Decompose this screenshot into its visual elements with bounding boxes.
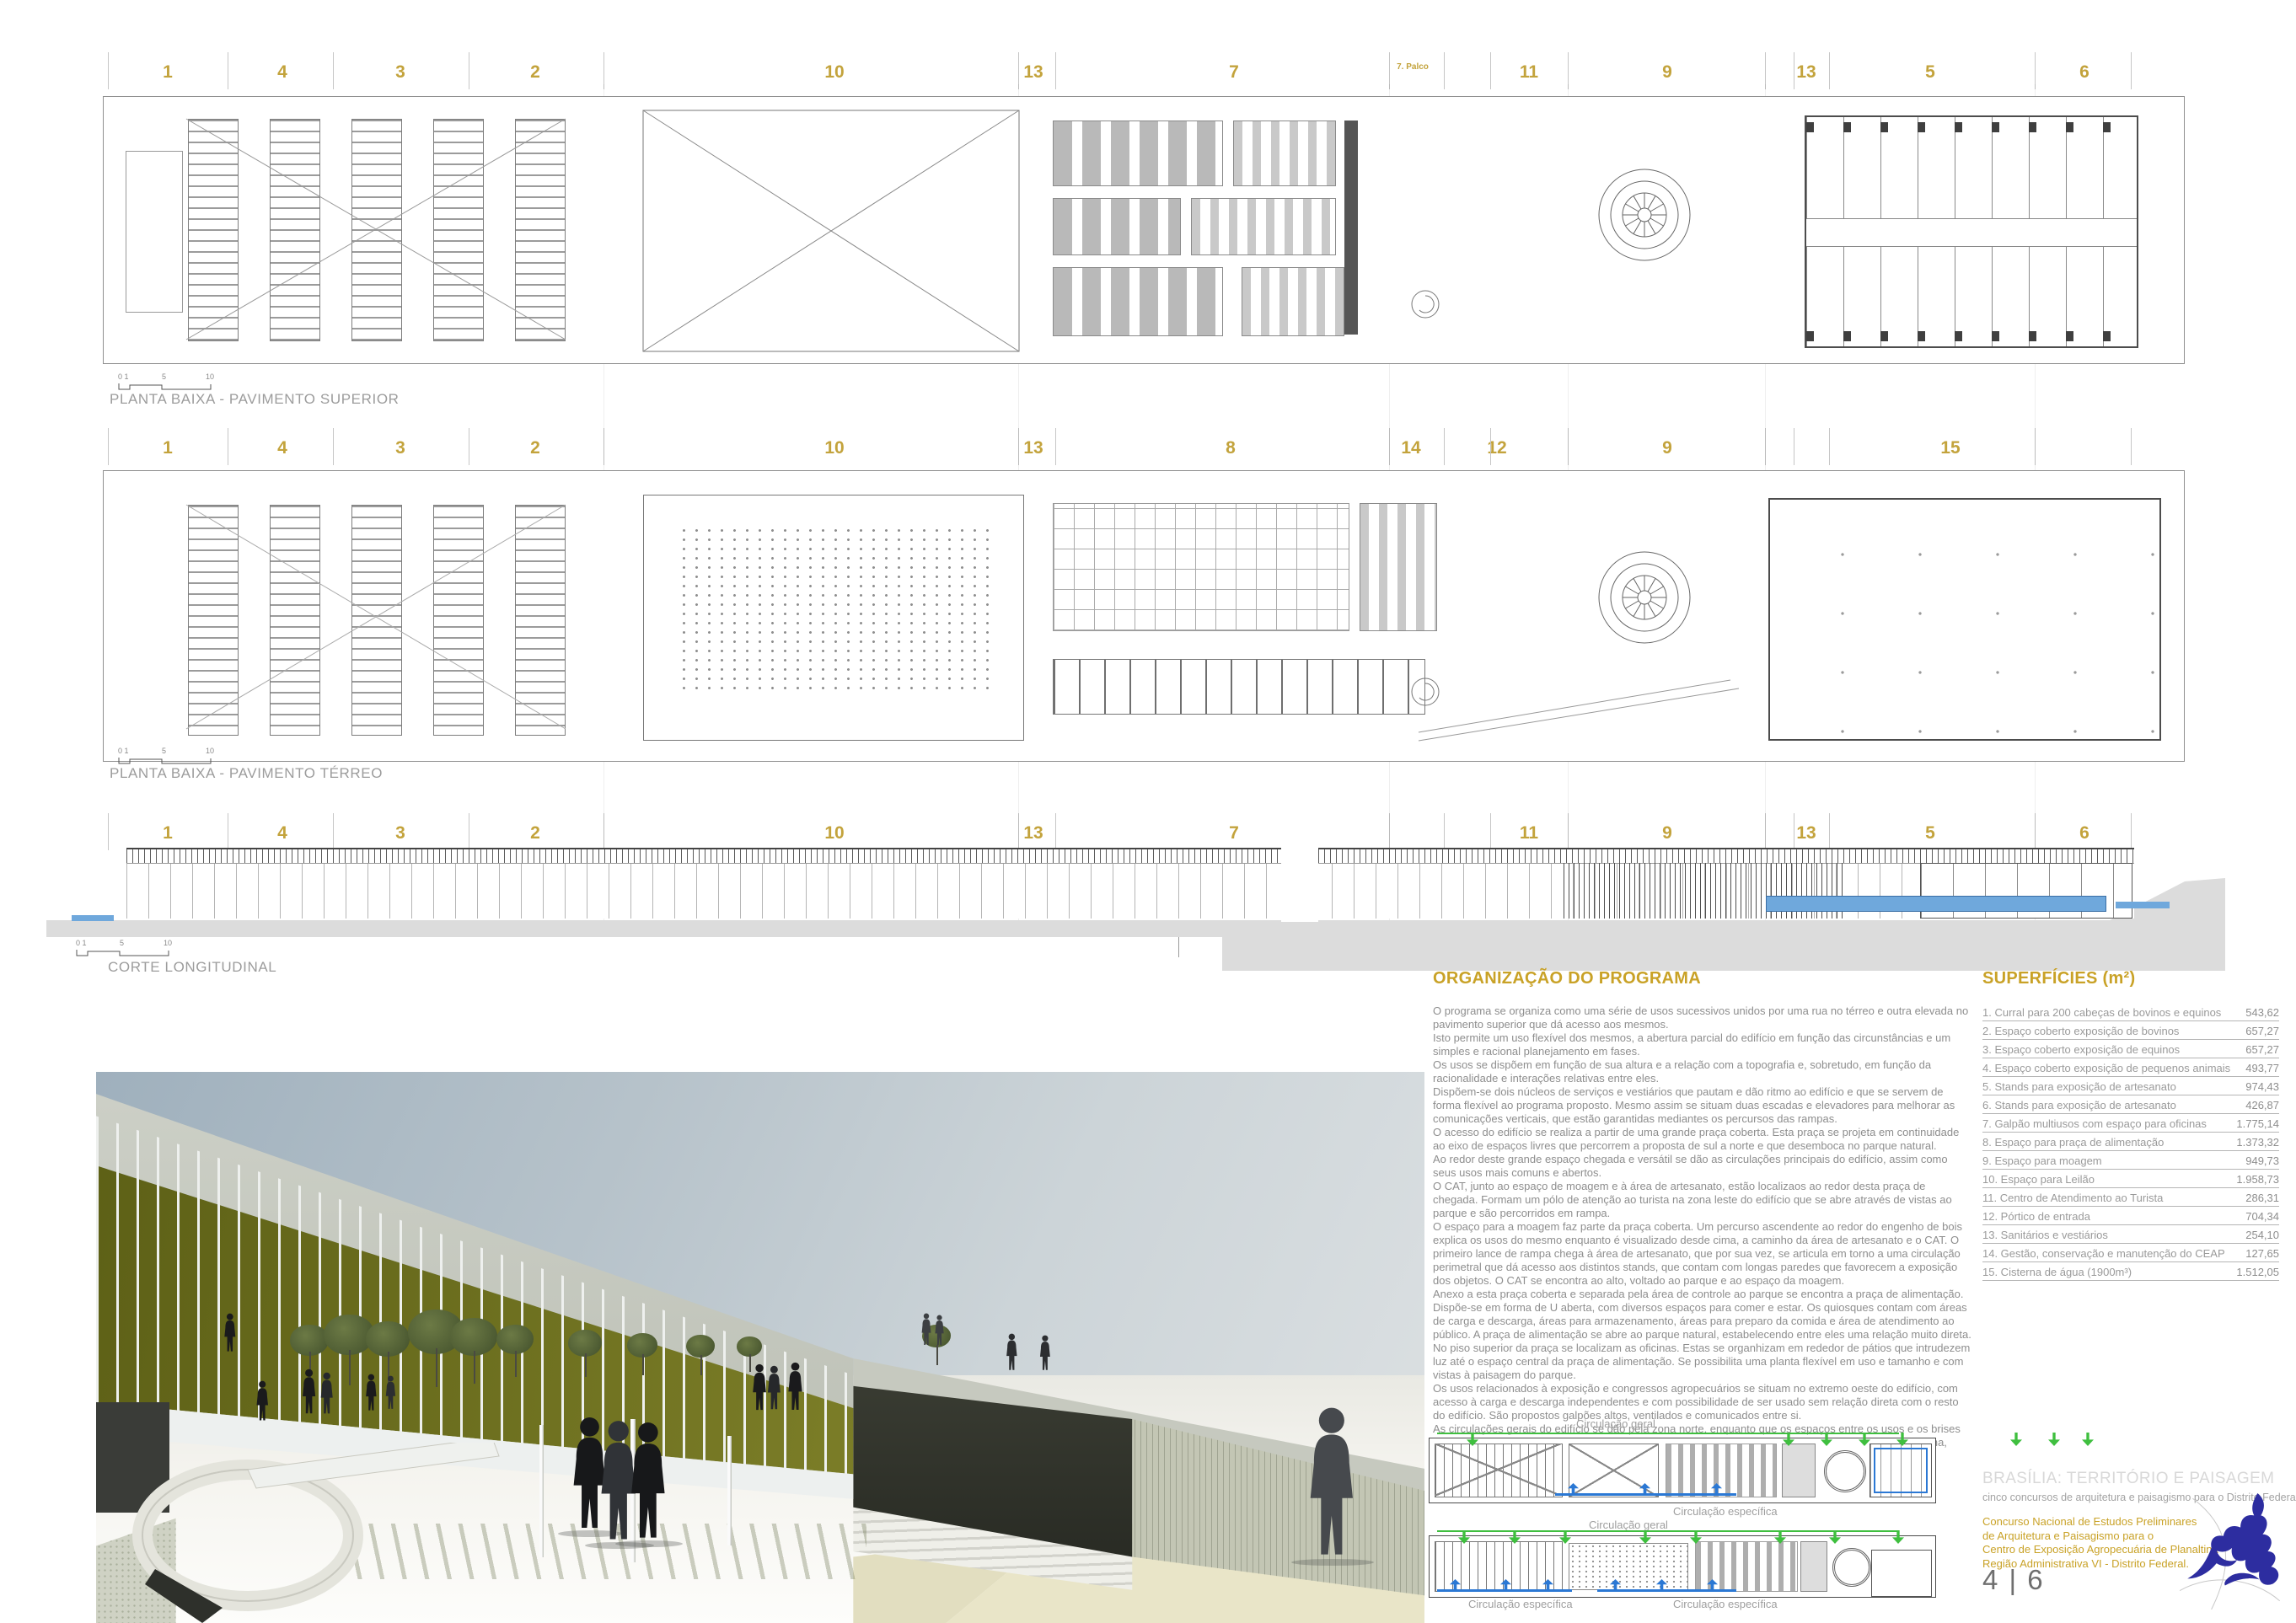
grid-tick	[333, 428, 334, 465]
person-silhouette	[253, 1380, 272, 1422]
grid-tick	[1444, 428, 1445, 465]
program-paragraph: No piso superior da praça se localizam a…	[1433, 1342, 1972, 1382]
grid-number: 15	[1940, 438, 1960, 458]
grid-number: 6	[2079, 62, 2089, 83]
grid-number: 10	[824, 823, 844, 844]
green-arrow-down	[2082, 1433, 2094, 1446]
surface-value: 1.512,05	[2236, 1266, 2279, 1278]
scale-5: 5	[120, 939, 124, 947]
perspective-render	[96, 1072, 1424, 1623]
surface-label: 15. Cisterna de água (1900m³)	[1982, 1266, 2132, 1278]
tree-trunk	[474, 1351, 475, 1384]
grid-tick	[1490, 428, 1491, 465]
grid-number: 2	[530, 823, 540, 844]
surface-value: 493,77	[2245, 1062, 2279, 1074]
grid-number: 1	[163, 62, 173, 83]
grid-tick	[469, 52, 469, 89]
page-number: 4 | 6	[1982, 1564, 2045, 1596]
program-paragraph: Os usos se dispõem em função de sua altu…	[1433, 1058, 1972, 1085]
grid-number: 2	[530, 62, 540, 83]
surface-label: 5. Stands para exposição de artesanato	[1982, 1080, 2176, 1093]
person-silhouette	[764, 1365, 785, 1411]
person-silhouette	[362, 1374, 380, 1412]
program-paragraph: O espaço para a moagem faz parte da praç…	[1433, 1220, 1972, 1288]
tree-trunk	[349, 1350, 351, 1385]
mini-rooms	[1666, 1444, 1777, 1497]
grid-tick	[228, 52, 228, 89]
tree-trunk	[936, 1345, 938, 1365]
mini-moagem-circle	[1824, 1450, 1866, 1492]
tree-trunk	[436, 1348, 437, 1387]
presentation-board: 1432101377. Palco11913561432101381412915…	[0, 0, 2296, 1623]
grid-tick	[1055, 428, 1056, 465]
render-column	[539, 1425, 544, 1557]
grid-number: 6	[2079, 823, 2089, 844]
surface-row: 10. Espaço para Leilão1.958,73	[1982, 1170, 2279, 1188]
green-circulation-line	[1437, 1530, 1899, 1532]
surface-row: 7. Galpão multiusos com espaço para ofic…	[1982, 1114, 2279, 1133]
circulacao-especifica-label: Circulação específica	[1673, 1505, 1778, 1518]
surface-value: 543,62	[2245, 1006, 2279, 1019]
tree	[496, 1325, 534, 1380]
scale-0-1: 0 1	[118, 747, 129, 755]
grid-number: 1	[163, 823, 173, 844]
program-paragraph: O CAT, junto ao espaço de moagem e à áre…	[1433, 1180, 1972, 1220]
scalebar: 0 1 5 10	[76, 940, 194, 959]
surface-row: 4. Espaço coberto exposição de pequenos …	[1982, 1058, 2279, 1077]
grid-tick	[108, 52, 109, 89]
circulacao-especifica-label: Circulação específica	[1468, 1598, 1573, 1610]
scale-0-1: 0 1	[76, 939, 87, 947]
grid-number: 4	[277, 823, 287, 844]
scale-10: 10	[206, 747, 214, 755]
person-silhouette	[221, 1313, 239, 1353]
program-heading: ORGANIZAÇÃO DO PROGRAMA	[1433, 969, 1701, 988]
scalebar: 0 1 5 10	[118, 748, 236, 767]
grid-number: 5	[1925, 823, 1935, 844]
grid-number: 14	[1401, 438, 1420, 458]
surfaces-table: 1. Curral para 200 cabeças de bovinos e …	[1982, 1003, 2279, 1281]
grid-number: 3	[395, 438, 405, 458]
mini-service	[1782, 1444, 1816, 1497]
tree	[686, 1335, 715, 1378]
program-paragraph: Dispõem-se dois núcleos de serviços e ve…	[1433, 1085, 1972, 1126]
surface-row: 13. Sanitários e vestiários254,10	[1982, 1225, 2279, 1244]
surface-row: 9. Espaço para moagem949,73	[1982, 1151, 2279, 1170]
surface-value: 1.373,32	[2236, 1136, 2279, 1149]
grid-tick	[1794, 428, 1794, 465]
surface-label: 1. Curral para 200 cabeças de bovinos e …	[1982, 1006, 2221, 1019]
tree-trunk	[700, 1355, 702, 1375]
surface-label: 7. Galpão multiusos com espaço para ofic…	[1982, 1117, 2207, 1130]
surface-label: 2. Espaço coberto exposição de bovinos	[1982, 1025, 2179, 1037]
tree-canopy	[366, 1321, 410, 1357]
grid-tick	[1794, 52, 1794, 89]
water-left	[72, 915, 114, 921]
surface-label: 4. Espaço coberto exposição de pequenos …	[1982, 1062, 2230, 1074]
surface-value: 657,27	[2245, 1043, 2279, 1056]
grid-number: 13	[1023, 823, 1043, 844]
tree-trunk	[642, 1354, 644, 1375]
surface-label: 14. Gestão, conservação e manutenção do …	[1982, 1247, 2225, 1260]
person-silhouette	[1003, 1333, 1021, 1372]
surface-label: 10. Espaço para Leilão	[1982, 1173, 2095, 1186]
grid-number: 10	[824, 62, 844, 83]
surface-row: 3. Espaço coberto exposição de equinos65…	[1982, 1040, 2279, 1058]
surface-row: 12. Pórtico de entrada704,34	[1982, 1207, 2279, 1225]
grid-number: 1	[163, 438, 173, 458]
roof-louvers	[126, 849, 2134, 864]
surface-label: 3. Espaço coberto exposição de equinos	[1982, 1043, 2180, 1056]
surface-row: 15. Cisterna de água (1900m³)1.512,05	[1982, 1262, 2279, 1281]
surface-row: 2. Espaço coberto exposição de bovinos65…	[1982, 1021, 2279, 1040]
person-silhouette	[932, 1315, 947, 1347]
grid-number: 7	[1229, 62, 1239, 83]
surface-value: 1.775,14	[2236, 1117, 2279, 1130]
grid-number: 5	[1925, 62, 1935, 83]
grid-number: 4	[277, 438, 287, 458]
grid-tick	[2131, 52, 2132, 89]
tree	[450, 1318, 497, 1389]
surface-value: 949,73	[2245, 1154, 2279, 1167]
circulacao-geral-label: Circulação geral	[1576, 1417, 1655, 1430]
grid-number: 8	[1226, 438, 1236, 458]
person-silhouette	[1037, 1335, 1054, 1372]
program-paragraph: Ao redor deste grande espaço chegada e v…	[1433, 1153, 1972, 1180]
grid-number: 10	[824, 438, 844, 458]
green-circulation-line	[1437, 1433, 1899, 1434]
person-silhouette	[383, 1375, 399, 1411]
person-silhouette	[317, 1372, 336, 1416]
grid-tick	[1055, 52, 1056, 89]
plan-pavimento-superior	[103, 96, 2185, 364]
section-label: CORTE LONGITUDINAL	[108, 959, 276, 976]
program-paragraph: O acesso do edifício se realiza a partir…	[1433, 1126, 1972, 1153]
water-cistern-small	[2116, 902, 2170, 908]
surface-value: 704,34	[2245, 1210, 2279, 1223]
grid-number: 13	[1796, 823, 1816, 844]
person-shadow	[615, 1540, 683, 1547]
surface-label: 11. Centro de Atendimento ao Turista	[1982, 1192, 2163, 1204]
scale-10: 10	[206, 372, 214, 381]
surface-value: 426,87	[2245, 1099, 2279, 1111]
mini-x	[1435, 1444, 1561, 1496]
surface-row: 11. Centro de Atendimento ao Turista286,…	[1982, 1188, 2279, 1207]
program-paragraph: O programa se organiza como uma série de…	[1433, 1004, 1972, 1031]
program-paragraphs: O programa se organiza como uma série de…	[1433, 1004, 1972, 1463]
render-column	[727, 1436, 732, 1546]
scale-5: 5	[162, 372, 166, 381]
grid-tick	[469, 428, 469, 465]
surface-value: 1.958,73	[2236, 1173, 2279, 1186]
tree-trunk	[585, 1353, 587, 1377]
scale-5: 5	[162, 747, 166, 755]
grid-number: 11	[1520, 823, 1538, 844]
grid-tick	[1444, 52, 1445, 89]
scale-0-1: 0 1	[118, 372, 129, 381]
grid-number: 7. Palco	[1397, 62, 1429, 72]
surface-label: 9. Espaço para moagem	[1982, 1154, 2102, 1167]
grid-number: 3	[395, 62, 405, 83]
board-title: BRASÍLIA: TERRITÓRIO E PAISAGEM	[1982, 1470, 2274, 1488]
grid-number: 7	[1229, 823, 1239, 844]
grid-tick	[333, 52, 334, 89]
spiral-ramp	[121, 1443, 509, 1623]
green-arrow-down	[2048, 1433, 2060, 1446]
person-silhouette	[784, 1362, 807, 1412]
grid-tick	[1829, 52, 1830, 89]
blue-circulation-line	[1597, 1589, 1736, 1592]
mini-service	[1800, 1541, 1827, 1592]
surface-row: 8. Espaço para praça de alimentação1.373…	[1982, 1133, 2279, 1151]
grid-number: 13	[1023, 62, 1043, 83]
grid-number: 2	[530, 438, 540, 458]
plan-terreo-label: PLANTA BAIXA - PAVIMENTO TÉRREO	[110, 765, 383, 782]
tree-trunk	[515, 1351, 517, 1377]
plan-linework	[104, 97, 2184, 363]
grid-number: 11	[1520, 62, 1538, 83]
tree	[568, 1330, 602, 1380]
surface-label: 6. Stands para exposição de artesanato	[1982, 1099, 2176, 1111]
program-paragraph: Anexo a esta praça coberta e separada pe…	[1433, 1288, 1972, 1342]
water-cistern	[1766, 896, 2106, 912]
surface-value: 974,43	[2245, 1080, 2279, 1093]
longitudinal-section	[46, 843, 2225, 990]
grid-tick	[228, 428, 228, 465]
surface-value: 254,10	[2245, 1229, 2279, 1241]
plaza-gap	[1281, 848, 1318, 922]
surface-label: 8. Espaço para praça de alimentação	[1982, 1136, 2164, 1149]
plan-linework	[104, 471, 2184, 761]
program-paragraph: Isto permite um uso flexível dos mesmos,…	[1433, 1031, 1972, 1058]
scale-10: 10	[164, 939, 172, 947]
surface-row: 5. Stands para exposição de artesanato97…	[1982, 1077, 2279, 1095]
mini-seats	[1569, 1543, 1688, 1590]
surface-value: 657,27	[2245, 1025, 2279, 1037]
tree-canopy	[450, 1318, 497, 1356]
person-silhouette	[1296, 1406, 1367, 1562]
grid-tick	[2131, 428, 2132, 465]
circulacao-geral-label: Circulação geral	[1589, 1519, 1668, 1531]
person-shadow	[1291, 1559, 1374, 1566]
grid-number: 13	[1023, 438, 1043, 458]
surface-value: 286,31	[2245, 1192, 2279, 1204]
grid-number: 4	[277, 62, 287, 83]
person-silhouette	[620, 1421, 676, 1544]
plan-superior-label: PLANTA BAIXA - PAVIMENTO SUPERIOR	[110, 391, 400, 408]
surface-row: 14. Gestão, conservação e manutenção do …	[1982, 1244, 2279, 1262]
surface-label: 13. Sanitários e vestiários	[1982, 1229, 2108, 1241]
green-arrow-down	[2010, 1433, 2022, 1446]
lake-paranoa-logo	[2175, 1490, 2296, 1618]
plan-pavimento-terreo	[103, 470, 2185, 762]
mini-moagem-circle	[1832, 1548, 1871, 1587]
scalebar: 0 1 5 10	[118, 374, 236, 393]
grid-number: 9	[1662, 823, 1672, 844]
grid-number: 9	[1662, 62, 1672, 83]
grid-number: 13	[1796, 62, 1816, 83]
grid-tick	[1829, 428, 1830, 465]
mini-hall	[1871, 1550, 1932, 1597]
circulacao-especifica-label: Circulação específica	[1673, 1598, 1778, 1610]
grid-number: 9	[1662, 438, 1672, 458]
surface-row: 1. Curral para 200 cabeças de bovinos e …	[1982, 1003, 2279, 1021]
grid-tick	[1490, 52, 1491, 89]
tree	[627, 1333, 657, 1379]
surface-row: 6. Stands para exposição de artesanato42…	[1982, 1095, 2279, 1114]
blue-circulation-loop	[1874, 1448, 1928, 1493]
surfaces-heading: SUPERFÍCIES (m²)	[1982, 969, 2135, 988]
grid-number: 3	[395, 823, 405, 844]
surface-value: 127,65	[2245, 1247, 2279, 1260]
surface-label: 12. Pórtico de entrada	[1982, 1210, 2090, 1223]
grid-tick	[108, 428, 109, 465]
program-paragraph: Os usos relacionados à exposição e congr…	[1433, 1382, 1972, 1422]
